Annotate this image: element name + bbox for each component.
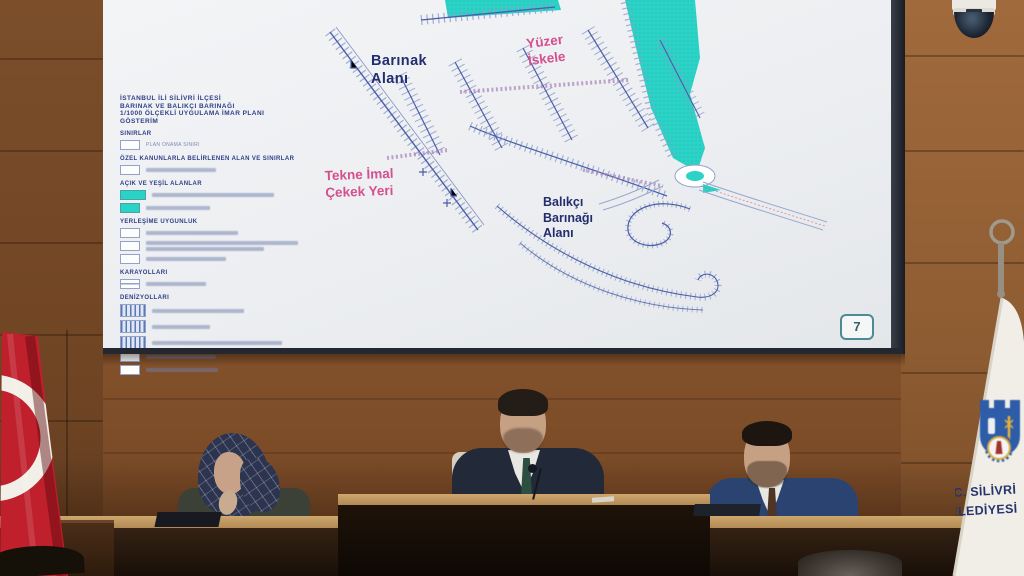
laptop-right <box>693 504 761 516</box>
flagpole <box>998 243 1004 291</box>
turkish-flag <box>0 326 72 576</box>
legend-swatch-boundary <box>120 140 140 150</box>
banner-title: T.C. SİLİVRİ BELEDİYESİ <box>955 480 1024 535</box>
security-camera <box>936 0 1008 42</box>
laptop-left <box>154 512 221 527</box>
quay-inner-arm <box>470 126 667 196</box>
camera-dome-icon <box>954 12 994 38</box>
label-tekne-imal-cekek-yeri: Tekne İmal Çekek Yeri <box>324 166 394 202</box>
wall-plank-seam <box>0 150 103 152</box>
legend-header-yerlesime: YERLEŞİME UYGUNLUK <box>120 219 380 225</box>
legend-item-illegible <box>146 168 216 172</box>
plan-title-line: GÖSTERİM <box>120 118 380 126</box>
chairman-beard <box>503 428 543 453</box>
member-beard <box>747 461 787 488</box>
plan-legend: İSTANBUL İLİ SİLİVRİ İLÇESİ BARINAK VE B… <box>120 95 380 375</box>
legend-header-sinirlar: SINIRLAR <box>120 131 380 137</box>
chairman-hair <box>498 389 548 416</box>
legend-row <box>120 203 380 213</box>
legend-item-illegible <box>152 325 210 329</box>
legend-swatch-suitability <box>120 254 140 264</box>
label-barinak-alani: Barınak Alanı <box>371 52 427 88</box>
screen-shadow <box>103 354 905 366</box>
wall-plank-seam <box>0 242 103 244</box>
roundabout <box>675 165 721 193</box>
legend-header-karayollari: KARAYOLLARI <box>120 270 380 276</box>
legend-swatch-road <box>120 279 140 289</box>
wall-plank-seam <box>901 150 1024 152</box>
legend-swatch-green-area <box>120 190 146 200</box>
legend-row: PLAN ONAMA SINIRI <box>120 140 380 150</box>
legend-swatch-suitability <box>120 241 140 251</box>
label-yuzer-iskele: Yüzer İskele <box>525 32 566 70</box>
legend-row <box>120 241 380 251</box>
green-area-right <box>625 0 705 172</box>
label-balikci-barinagi-alani: Balıkçı Barınağı Alanı <box>543 195 593 242</box>
legend-row <box>120 279 380 289</box>
legend-item-illegible <box>146 282 206 286</box>
wall-plank-seam <box>901 55 1024 57</box>
audience-head-foreground <box>798 550 902 576</box>
legend-item-illegible <box>152 341 282 345</box>
legend-header-denizyollari: DENİZYOLLARI <box>120 295 380 301</box>
municipality-banner: T.C. SİLİVRİ BELEDİYESİ <box>938 212 1024 576</box>
legend-swatch-pier <box>120 320 146 333</box>
legend-item-illegible <box>146 206 210 210</box>
legend-item-illegible <box>146 231 238 235</box>
legend-row <box>120 304 380 317</box>
legend-item-illegible <box>152 193 274 197</box>
legend-item-multiline <box>146 241 298 251</box>
legend-item-illegible <box>146 368 218 372</box>
screen-frame <box>891 0 905 354</box>
turkish-flag-graphic <box>0 326 72 576</box>
legend-row <box>120 365 380 375</box>
legend-swatch-pier <box>120 304 146 317</box>
legend-item-illegible <box>146 257 226 261</box>
member-hair <box>742 421 792 446</box>
legend-header-ozel: ÖZEL KANUNLARLA BELİRLENEN ALAN VE SINIR… <box>120 156 380 162</box>
breakwater-arcs <box>497 206 718 310</box>
microphone-icon <box>528 464 537 473</box>
legend-row <box>120 320 380 333</box>
plan-title-line: 1/1000 ÖLÇEKLİ UYGULAMA İMAR PLANI <box>120 110 380 118</box>
legend-item-illegible <box>152 309 244 313</box>
hook-quay <box>628 204 690 246</box>
plan-title-line: İSTANBUL İLİ SİLİVRİ İLÇESİ <box>120 95 380 103</box>
wall-plank-seam <box>0 58 103 60</box>
legend-row <box>120 228 380 238</box>
legend-swatch-marine <box>120 365 140 375</box>
slide-page-number: 7 <box>840 314 874 340</box>
desk-front-panel-center <box>338 505 710 576</box>
slide-content: İSTANBUL İLİ SİLİVRİ İLÇESİ BARINAK VE B… <box>103 0 891 350</box>
legend-swatch-suitability <box>120 228 140 238</box>
flagpole-finial-icon <box>991 221 1013 243</box>
green-area-top <box>445 0 561 18</box>
legend-swatch-coastline <box>120 165 140 175</box>
council-meeting-scene: İSTANBUL İLİ SİLİVRİ İLÇESİ BARINAK VE B… <box>0 0 1024 576</box>
banner-title-line2: BELEDİYESİ <box>955 499 1024 522</box>
legend-row <box>120 254 380 264</box>
projection-screen: İSTANBUL İLİ SİLİVRİ İLÇESİ BARINAK VE B… <box>103 0 903 354</box>
legend-swatch-green-area <box>120 203 140 213</box>
legend-item-label: PLAN ONAMA SINIRI <box>146 142 200 148</box>
